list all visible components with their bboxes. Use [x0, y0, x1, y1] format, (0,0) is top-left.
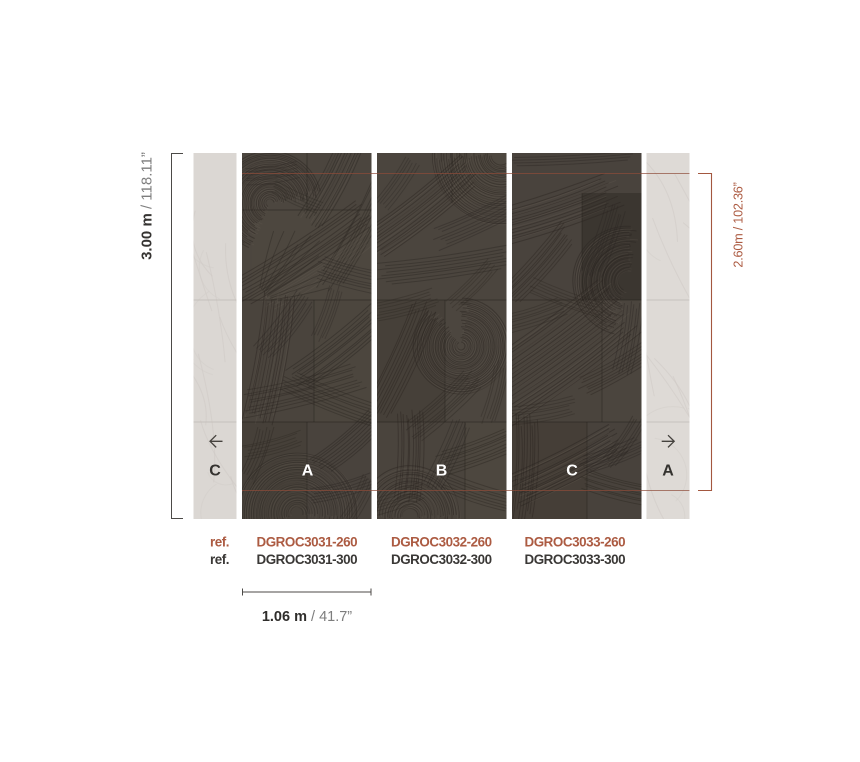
svg-text:B: B — [436, 463, 448, 480]
svg-text:A: A — [302, 463, 314, 480]
svg-text:DGROC3033-260: DGROC3033-260 — [525, 535, 626, 550]
svg-text:1.06 m / 41.7”: 1.06 m / 41.7” — [262, 609, 352, 625]
svg-text:DGROC3031-260: DGROC3031-260 — [257, 535, 358, 550]
svg-text:3.00 m / 118.11”: 3.00 m / 118.11” — [139, 152, 156, 260]
svg-text:DGROC3033-300: DGROC3033-300 — [525, 552, 626, 567]
svg-text:DGROC3032-260: DGROC3032-260 — [391, 535, 492, 550]
svg-text:DGROC3031-300: DGROC3031-300 — [257, 552, 358, 567]
svg-text:C: C — [209, 463, 221, 480]
svg-text:ref.: ref. — [210, 535, 229, 550]
svg-text:ref.: ref. — [210, 552, 229, 567]
svg-text:C: C — [566, 463, 578, 480]
svg-text:A: A — [662, 463, 674, 480]
svg-text:DGROC3032-300: DGROC3032-300 — [391, 552, 492, 567]
svg-text:2.60m / 102.36”: 2.60m / 102.36” — [732, 182, 746, 267]
